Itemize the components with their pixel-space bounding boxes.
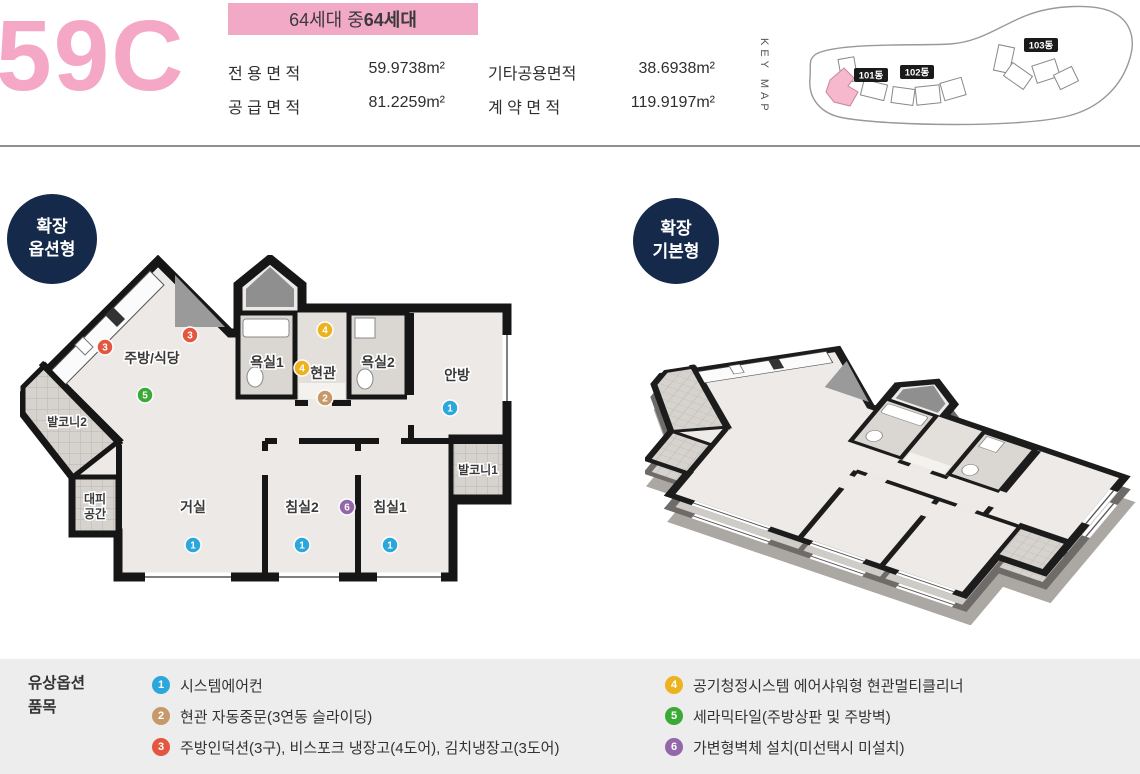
svg-text:1: 1 — [190, 541, 196, 552]
legend-item-6: 6 가변형벽체 설치(미선택시 미설치) — [665, 737, 905, 757]
legend-item-1: 1 시스템에어컨 — [152, 675, 263, 695]
legend-dot-3: 3 — [152, 738, 170, 756]
household-count-normal: 64세대 중 — [289, 6, 364, 32]
legend-dot-5: 5 — [665, 707, 683, 725]
marker-5-kitchen: 5 — [137, 387, 153, 403]
marker-3-kitchen-a: 3 — [97, 339, 113, 355]
svg-text:6: 6 — [344, 503, 350, 514]
room-label-bed1: 침실1 — [373, 499, 407, 515]
unit-code: 59C — [0, 6, 185, 106]
room-label-bed2: 침실2 — [285, 499, 319, 515]
marker-1-living: 1 — [185, 537, 201, 553]
legend-dot-4: 4 — [665, 676, 683, 694]
marker-3-kitchen-b: 3 — [182, 327, 198, 343]
marker-1-bed1: 1 — [382, 537, 398, 553]
brochure-page: 59C 64세대 중 64세대 전 용 면 적 59.9738m² 공 급 면 … — [0, 0, 1140, 774]
marker-4-entry-a: 4 — [317, 322, 333, 338]
legend-dot-6: 6 — [665, 738, 683, 756]
legend-item-4: 4 공기청정시스템 에어샤워형 현관멀티클리너 — [665, 675, 964, 695]
marker-6-wall: 6 — [339, 499, 355, 515]
area-value-contract: 119.9197m² — [605, 94, 715, 112]
room-label-bath1: 욕실1 — [250, 354, 284, 370]
room-label-entry: 현관 — [310, 365, 336, 381]
left-plan-badge-line1: 확장 — [36, 216, 67, 239]
area-value-supply: 81.2259m² — [335, 94, 445, 112]
right-plan-badge: 확장 기본형 — [633, 198, 719, 284]
room-label-master: 안방 — [444, 367, 470, 383]
marker-2-entry: 2 — [317, 390, 333, 406]
area-label-exclusive: 전 용 면 적 — [228, 60, 300, 84]
floorplan-3d — [645, 290, 1140, 625]
building-cluster-102: 102동 — [891, 65, 966, 105]
svg-text:4: 4 — [299, 364, 305, 375]
building-label-103: 103동 — [1029, 41, 1054, 52]
paid-options-title-line2: 품목 — [28, 696, 85, 720]
room-label-living: 거실 — [180, 499, 206, 515]
right-plan-badge-line2: 기본형 — [653, 241, 700, 264]
legend-text-5: 세라믹타일(주방상판 및 주방벽) — [693, 706, 891, 727]
legend-dot-1: 1 — [152, 676, 170, 694]
area-label-common: 기타공용면적 — [488, 60, 576, 84]
household-count-bold: 64세대 — [364, 6, 417, 32]
svg-text:1: 1 — [387, 541, 393, 552]
keymap-title: KEY MAP — [758, 38, 770, 115]
paid-options-title-line1: 유상옵션 — [28, 672, 85, 696]
legend-item-5: 5 세라믹타일(주방상판 및 주방벽) — [665, 706, 891, 726]
legend-dot-2: 2 — [152, 707, 170, 725]
household-count-badge: 64세대 중 64세대 — [228, 3, 478, 35]
legend-text-2: 현관 자동중문(3연동 슬라이딩) — [180, 706, 372, 727]
header-divider — [0, 145, 1140, 147]
paid-options-title: 유상옵션 품목 — [28, 672, 85, 720]
room-label-refuge-1: 대피 — [84, 491, 106, 506]
svg-text:1: 1 — [299, 541, 305, 552]
legend-text-4: 공기청정시스템 에어샤워형 현관멀티클리너 — [693, 675, 964, 696]
room-label-balcony1: 발코니1 — [458, 462, 498, 477]
area-value-common: 38.6938m² — [605, 60, 715, 78]
area-label-contract: 계 약 면 적 — [488, 94, 560, 118]
svg-text:5: 5 — [142, 391, 148, 402]
building-label-101: 101동 — [859, 71, 884, 82]
svg-text:3: 3 — [187, 331, 193, 342]
legend-item-2: 2 현관 자동중문(3연동 슬라이딩) — [152, 706, 372, 726]
legend-text-6: 가변형벽체 설치(미선택시 미설치) — [693, 737, 905, 758]
svg-text:4: 4 — [322, 326, 328, 337]
keymap-svg: 101동 102동 103동 — [800, 2, 1138, 138]
floorplan-2d: 주방/식당 욕실1 현관 욕실2 안방 발코니1 발코니2 대피 공간 거실 침… — [20, 255, 530, 590]
marker-1-bed2: 1 — [294, 537, 310, 553]
room-label-kitchen: 주방/식당 — [124, 350, 180, 366]
svg-text:3: 3 — [102, 343, 108, 354]
legend-text-1: 시스템에어컨 — [180, 675, 263, 696]
legend-text-3: 주방인덕션(3구), 비스포크 냉장고(4도어), 김치냉장고(3도어) — [180, 737, 559, 758]
area-value-exclusive: 59.9738m² — [335, 60, 445, 78]
building-cluster-103: 103동 — [993, 38, 1078, 90]
right-plan-badge-line1: 확장 — [660, 218, 691, 241]
marker-4-entry-b: 4 — [294, 360, 310, 376]
legend-item-3: 3 주방인덕션(3구), 비스포크 냉장고(4도어), 김치냉장고(3도어) — [152, 737, 559, 757]
marker-1-master: 1 — [442, 400, 458, 416]
building-cluster-101: 101동 — [826, 57, 888, 106]
area-label-supply: 공 급 면 적 — [228, 94, 300, 118]
room-label-balcony2: 발코니2 — [47, 414, 87, 429]
building-label-102: 102동 — [905, 68, 930, 79]
room-label-refuge-2: 공간 — [84, 506, 106, 521]
svg-text:1: 1 — [447, 404, 453, 415]
site-boundary — [810, 6, 1132, 124]
svg-text:2: 2 — [322, 394, 328, 405]
room-label-bath2: 욕실2 — [361, 354, 395, 370]
